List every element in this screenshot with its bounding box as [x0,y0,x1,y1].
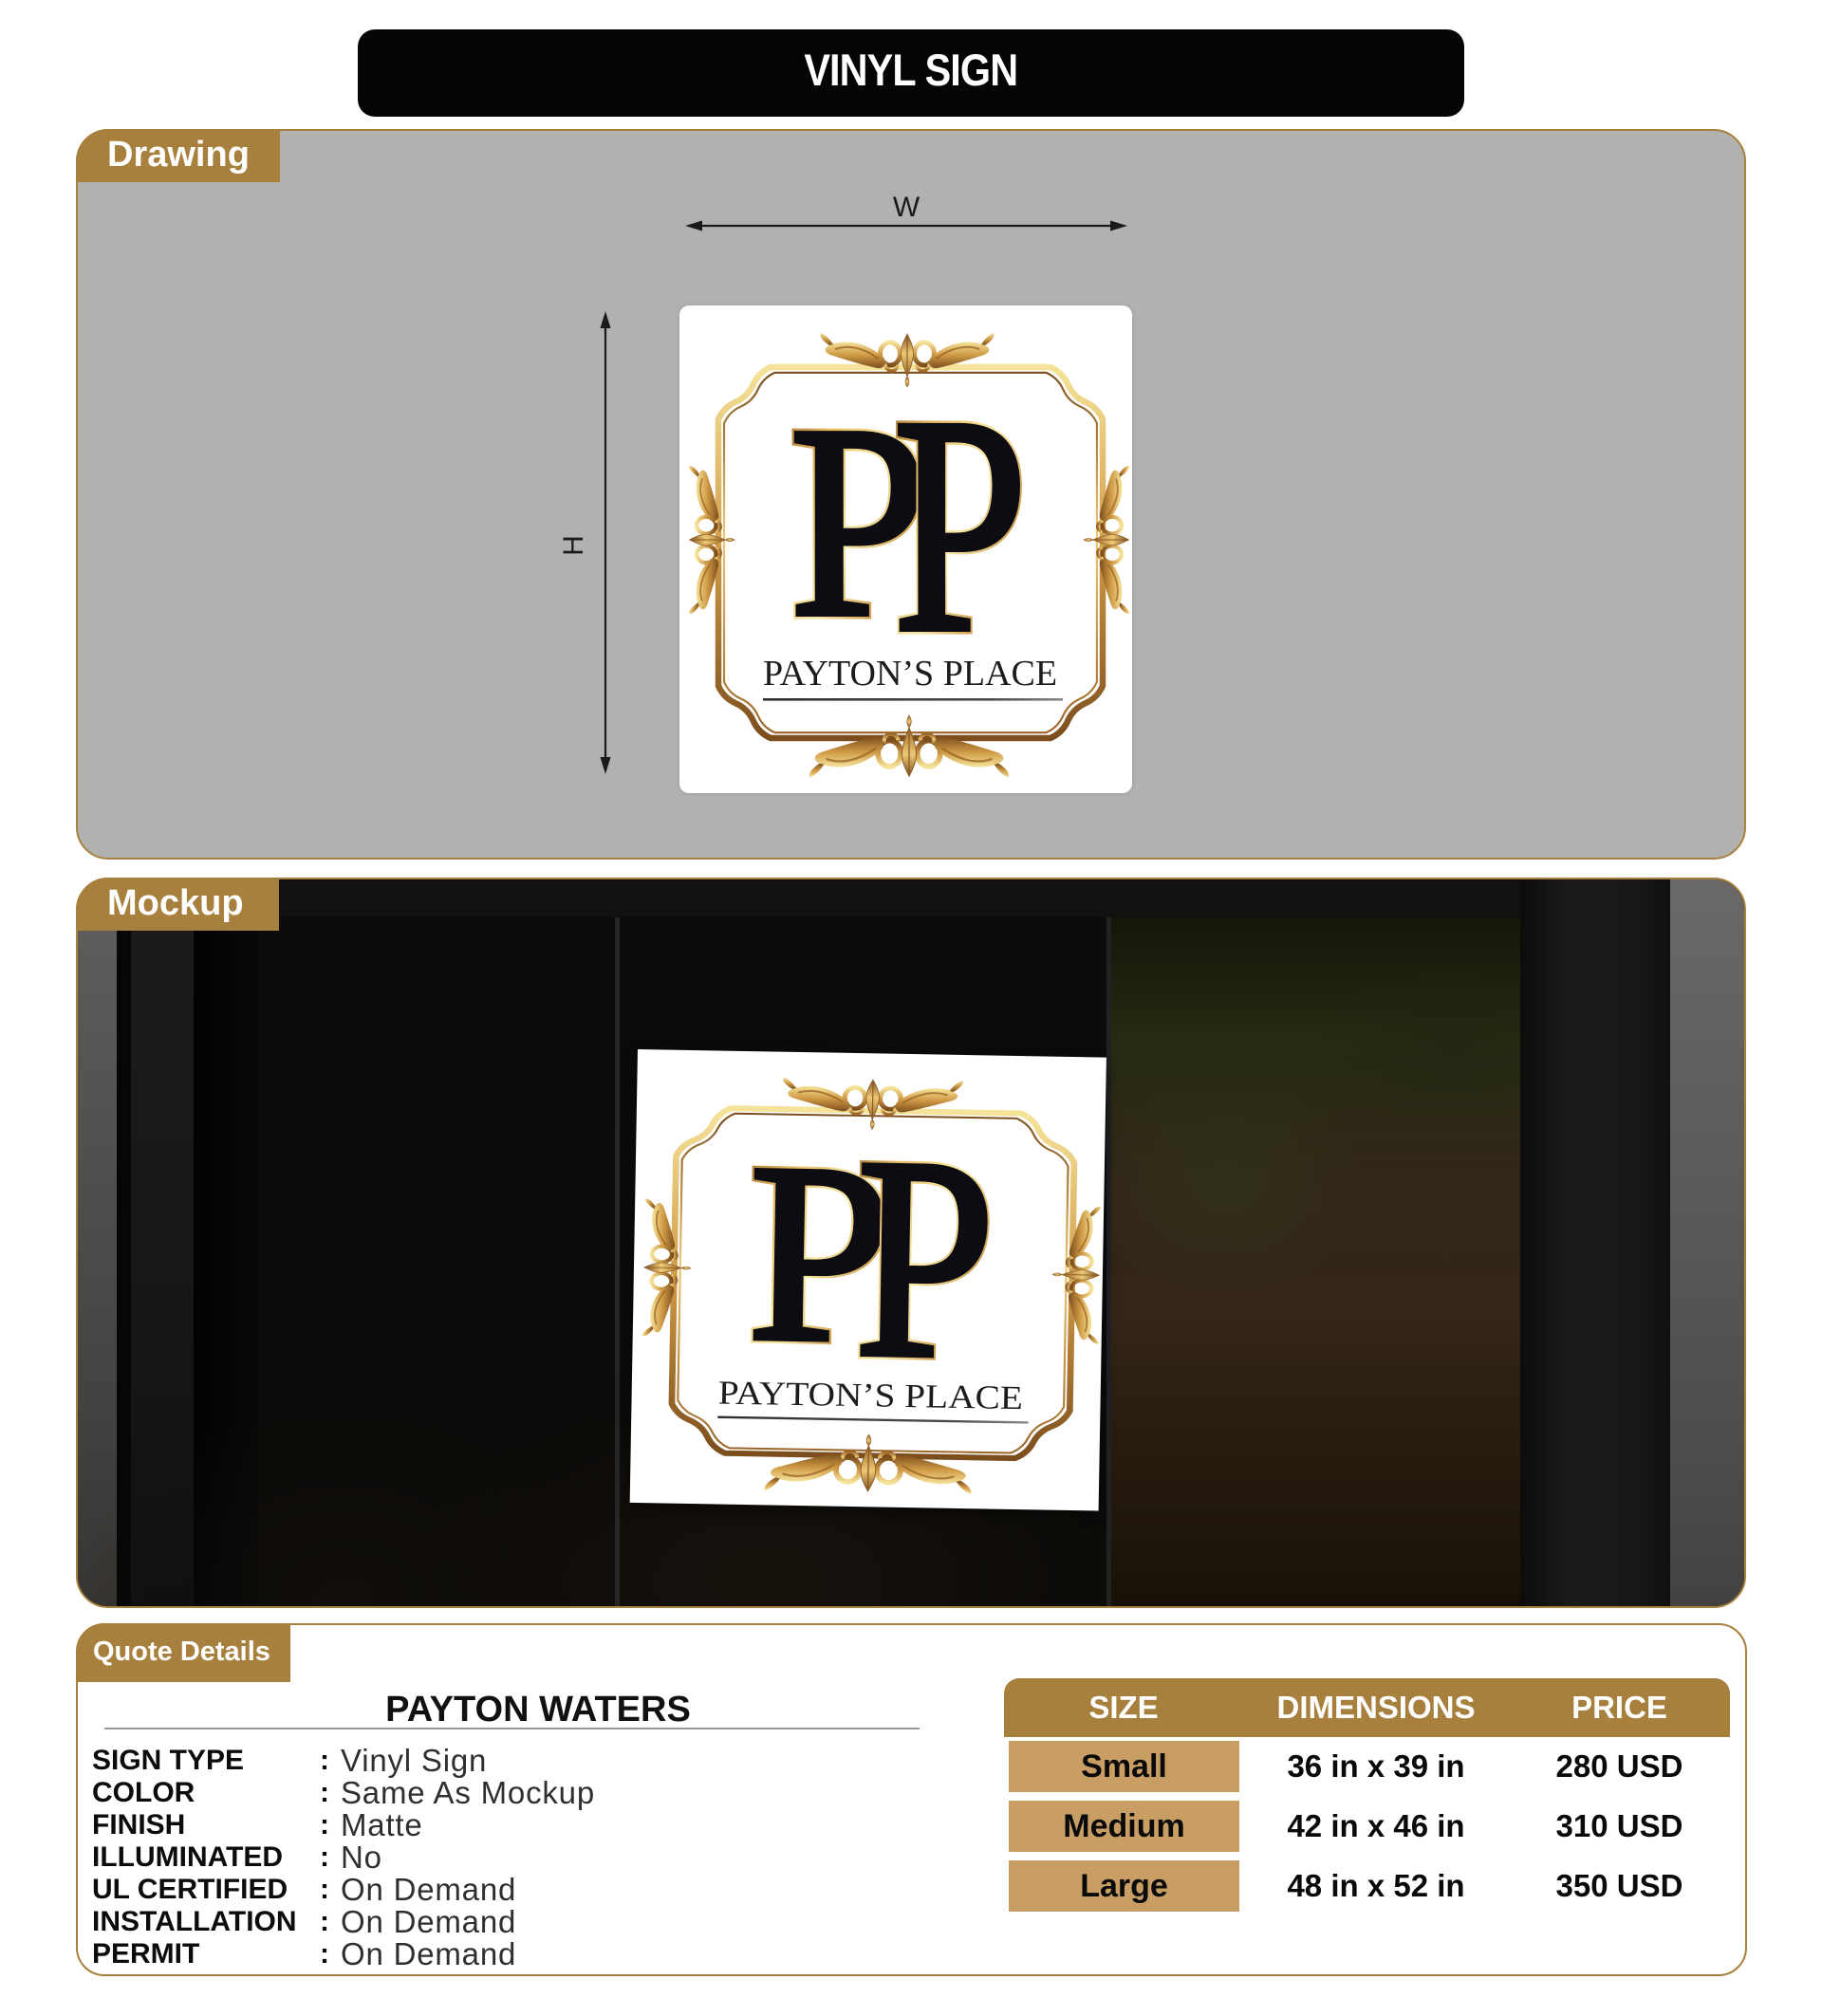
svg-text:H: H [562,535,589,556]
svg-text:W: W [893,192,920,223]
